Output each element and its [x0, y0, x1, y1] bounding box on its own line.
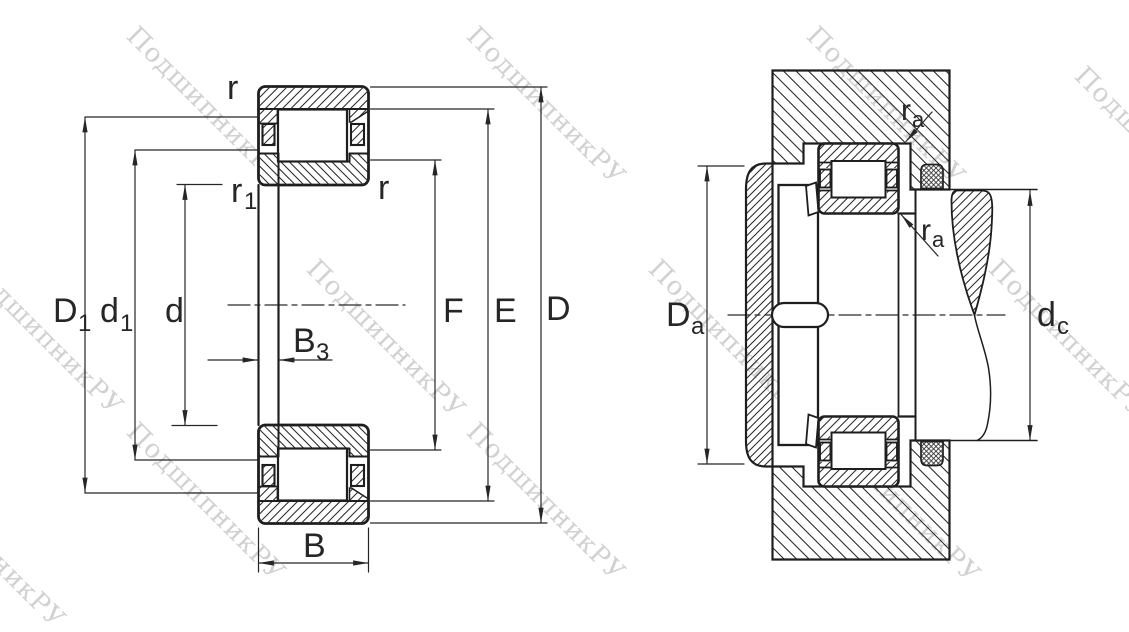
label-B3: B [293, 322, 316, 360]
inner-ring-section [819, 417, 899, 433]
watermark-text: ПодшипникРУ [460, 417, 631, 588]
cage-section [351, 465, 364, 486]
label-Da-sub: a [691, 313, 705, 340]
roller [278, 449, 347, 501]
label-F: F [443, 292, 464, 330]
watermark-text: ПодшипникРУ [460, 21, 631, 192]
outer-ring-section [259, 501, 369, 524]
housing-cover-section [746, 164, 773, 467]
watermark-text: ПодшипникРУ [1068, 61, 1129, 232]
outer-ring-flange [259, 487, 278, 502]
right-view-mounting-arrangement: r a r a D a d c [666, 71, 1069, 560]
roller [832, 433, 886, 470]
seal-ring-upper-hatch [921, 165, 943, 189]
bearing-upper-section [259, 87, 369, 186]
label-dc: d [1037, 296, 1056, 334]
bearing-lower-section [806, 415, 899, 487]
cage-tab [806, 415, 819, 448]
label-ra-bottom: r [921, 214, 931, 247]
cage-section [820, 443, 831, 461]
label-D1: D [53, 292, 78, 330]
label-D: D [546, 290, 571, 328]
cage-section [351, 124, 364, 145]
roller [832, 161, 886, 198]
inner-ring-section [819, 198, 899, 214]
loose-rib-washer [259, 154, 279, 186]
label-ra-top: r [901, 94, 911, 127]
label-B: B [303, 527, 326, 565]
bearing-lower-section [259, 425, 369, 524]
watermark-text: ПодшипникРУ [982, 254, 1129, 425]
label-Da: D [666, 296, 691, 334]
label-d1: d [100, 292, 119, 330]
shaft-break-line [975, 315, 991, 441]
technical-drawing-page: ПодшипникРУ ПодшипникРУ ПодшипникРУ Подш… [0, 0, 1129, 632]
seal-ring-lower-hatch [921, 442, 943, 466]
loose-rib-washer [259, 425, 279, 457]
cage-section [263, 124, 275, 145]
label-d: d [165, 292, 184, 330]
label-ra-bottom-sub: a [932, 227, 945, 252]
label-r-top: r [227, 69, 238, 107]
label-d1-sub: 1 [120, 310, 133, 337]
roller [278, 110, 347, 162]
label-r-right: r [378, 169, 389, 207]
cage-section [887, 443, 898, 461]
bearing-upper-section [806, 144, 899, 216]
label-ra-top-sub: a [912, 107, 925, 132]
label-E: E [494, 292, 517, 330]
center-stud [772, 303, 828, 327]
label-r1: r [231, 172, 242, 210]
watermark-text: ПодшипникРУ [0, 251, 129, 422]
watermark-text: ПодшипникРУ [0, 464, 71, 632]
label-B3-sub: 3 [316, 339, 329, 366]
shaft-break-section [952, 191, 993, 316]
cage-section [263, 465, 275, 486]
left-view-bearing-cross-section: r r 1 r D 1 d 1 d B 3 B F E D [53, 69, 571, 572]
outer-ring-flange [259, 109, 278, 124]
outer-ring-section [259, 87, 369, 110]
cage-section [887, 170, 898, 188]
bearing-drawing-canvas: ПодшипникРУ ПодшипникРУ ПодшипникРУ Подш… [0, 0, 1129, 632]
cage-section [820, 170, 831, 188]
outer-ring-section [819, 144, 899, 163]
label-r1-sub: 1 [244, 188, 257, 215]
outer-ring-section [819, 468, 899, 487]
cage-tab [806, 183, 819, 216]
label-dc-sub: c [1057, 313, 1069, 340]
label-D1-sub: 1 [78, 310, 91, 337]
